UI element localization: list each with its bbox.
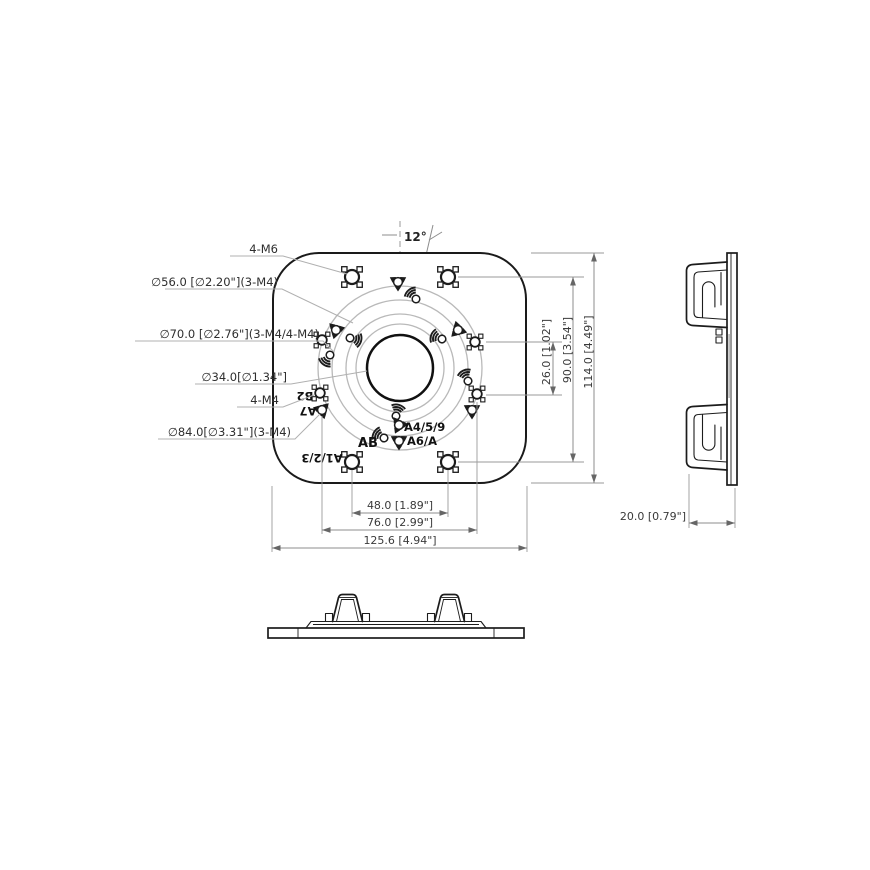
- thickness-dimension: 20.0 [0.79"]: [620, 474, 735, 528]
- m6-hole-top-right: [438, 267, 459, 288]
- m4-hole-lower-right: [469, 386, 485, 402]
- bottom-post-left: [326, 595, 370, 622]
- front-view: 12°: [135, 221, 604, 552]
- plate-label-a459: A4/5/9: [404, 420, 445, 434]
- dim-76-label: 76.0 [2.99"]: [367, 516, 433, 529]
- side-clip-b: [716, 337, 722, 343]
- m4-hole-b2: [312, 385, 328, 401]
- side-view: 20.0 [0.79"]: [620, 253, 737, 528]
- bottom-post-right: [428, 595, 472, 622]
- m6-hole-bottom-right: [438, 452, 459, 473]
- callout-d56-label: ∅56.0 [∅2.20"](3-M4): [151, 275, 278, 289]
- callout-4m6-label: 4-M6: [249, 242, 278, 256]
- dim-20-label: 20.0 [0.79"]: [620, 510, 686, 523]
- dim-125-label: 125.6 [4.94"]: [363, 534, 436, 547]
- plate-label-a7: A7: [300, 404, 317, 418]
- plate-label-ab: AB: [358, 436, 378, 451]
- side-hook-bottom: [687, 405, 728, 471]
- m6-hole-top-left: [342, 267, 363, 288]
- bottom-view: [268, 595, 524, 639]
- center-hole: [367, 335, 433, 401]
- angle-label: 12°: [404, 230, 427, 244]
- dim-26-label: 26.0 [1.02"]: [540, 319, 553, 385]
- m4-hole-right: [467, 334, 483, 350]
- callout-d34-label: ∅34.0[∅1.34"]: [201, 370, 287, 384]
- callout-d70-label: ∅70.0 [∅2.76"](3-M4/4-M4): [160, 327, 319, 341]
- side-hook-top: [687, 262, 728, 328]
- callout-d84-label: ∅84.0[∅3.31"](3-M4): [168, 425, 291, 439]
- side-clip-a: [716, 329, 722, 335]
- dim-114-label: 114.0 [4.49"]: [582, 315, 595, 388]
- bottom-base-plate: [268, 628, 524, 638]
- dim-48-label: 48.0 [1.89"]: [367, 499, 433, 512]
- m6-hole-bottom-left: [342, 452, 363, 473]
- technical-drawing-canvas: 12°: [0, 0, 870, 870]
- dim-90-label: 90.0 [3.54"]: [561, 317, 574, 383]
- plate-label-a6a: A6/A: [407, 434, 437, 448]
- callout-4m4-label: 4-M4: [250, 393, 279, 407]
